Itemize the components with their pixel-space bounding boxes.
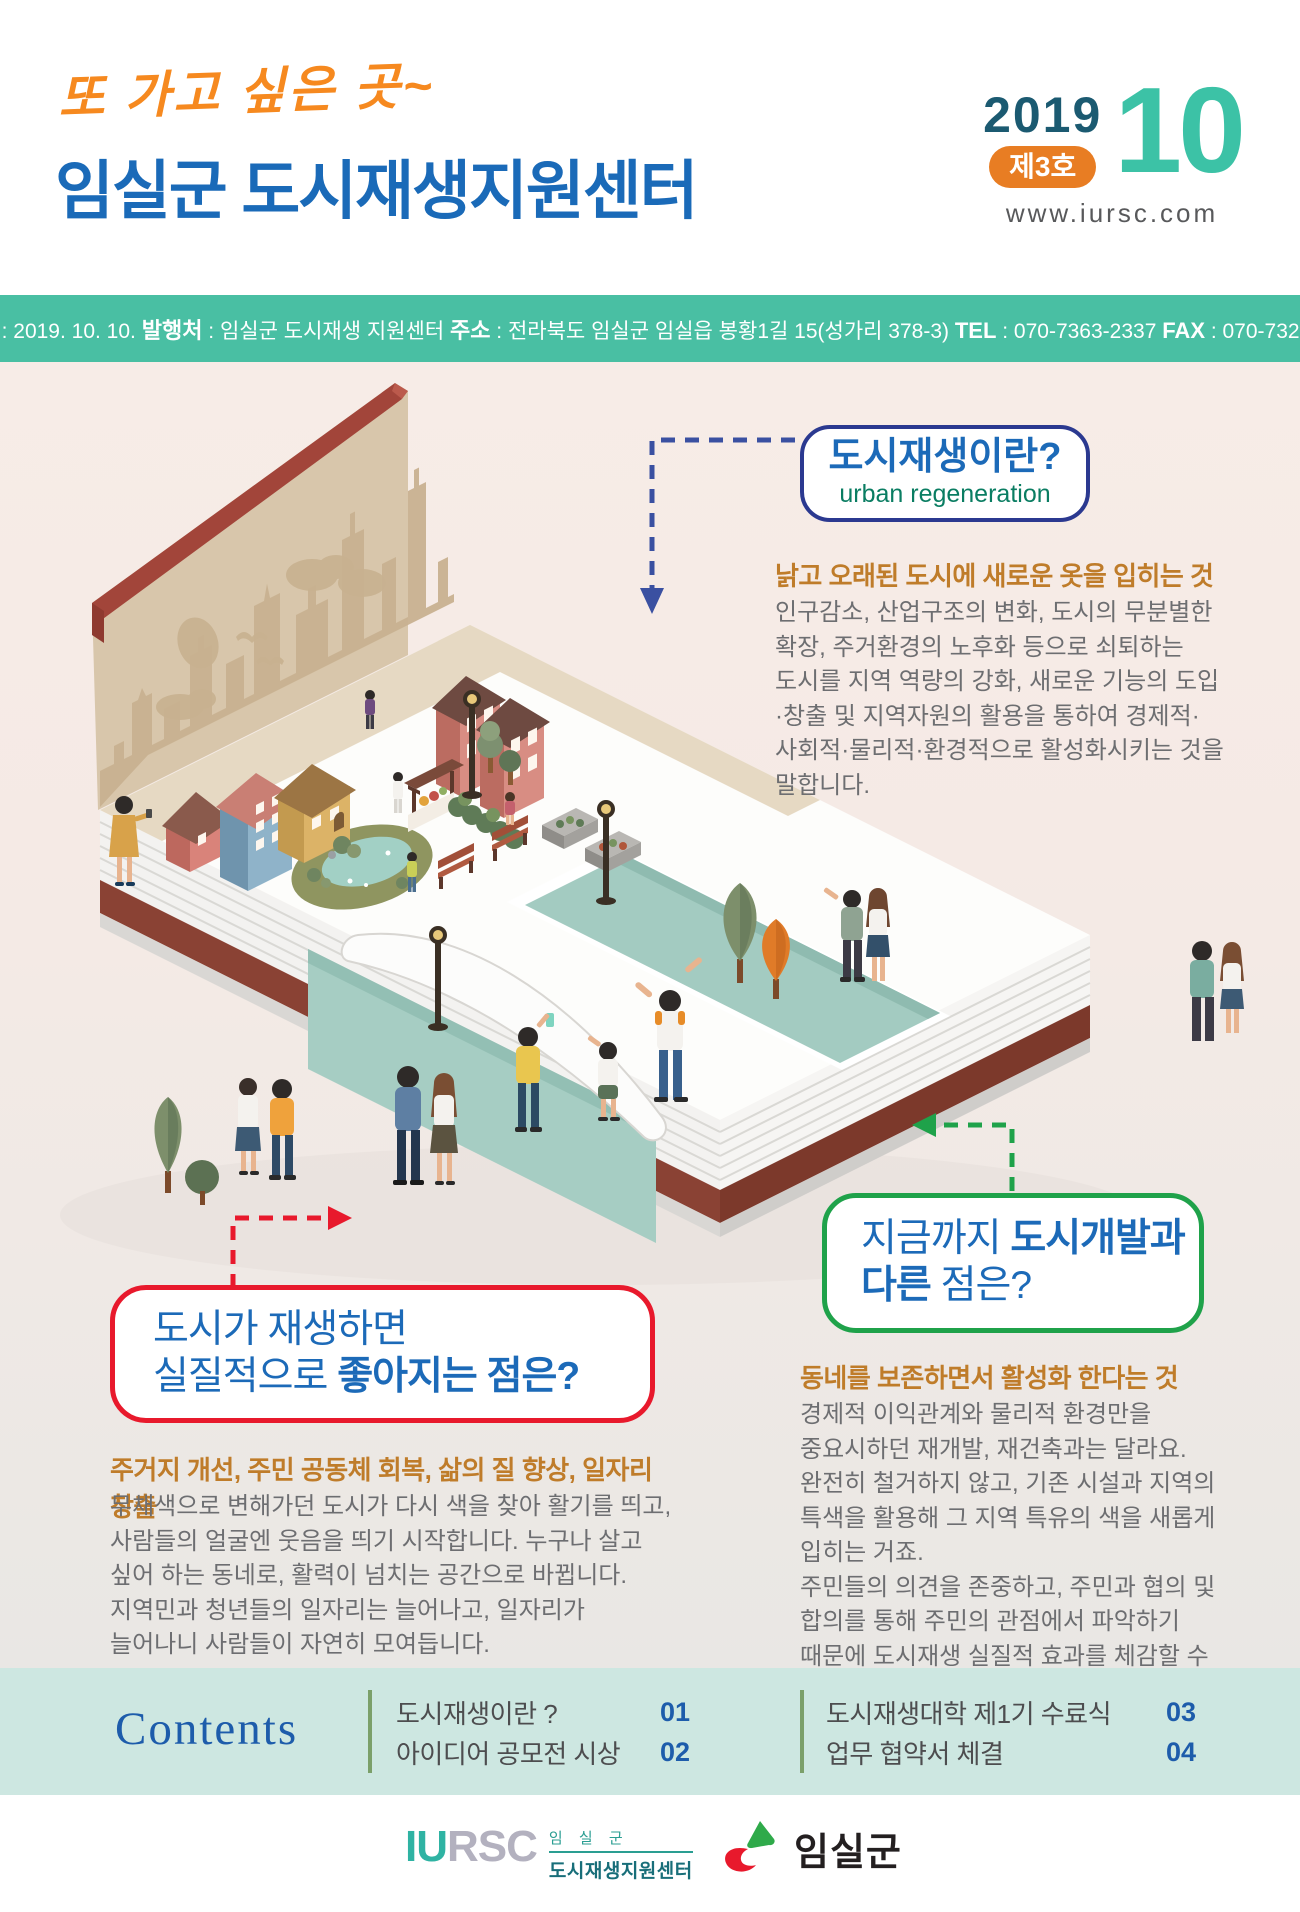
bubble-line-1: 지금까지 도시개발과 [861,1216,1199,1263]
main-body: 도시재생이란? urban regeneration 낡고 오래된 도시에 새로… [0,362,1300,1668]
contents-item-label: 도시재생대학 제1기 수료식 [826,1694,1111,1731]
contents-item[interactable]: 도시재생대학 제1기 수료식 03 [826,1692,1196,1732]
header: 또 가고 싶은 곳~ 임실군 도시재생지원센터 2019 제3호 10 www.… [0,0,1300,295]
bubble-line-2: 실질적으로 좋아지는 점은? [153,1354,650,1401]
bubble-line-1: 도시가 재생하면 [153,1307,650,1354]
page-title: 임실군 도시재생지원센터 [55,140,696,232]
contents-item-label: 업무 협약서 체결 [826,1734,1003,1771]
contents-band: Contents 도시재생이란 ? 01 아이디어 공모전 시상 02 도시재생… [0,1668,1300,1795]
issue-month: 10 [1114,80,1242,180]
contents-column-1: 도시재생이란 ? 01 아이디어 공모전 시상 02 [396,1692,706,1772]
tagline: 또 가고 싶은 곳~ [57,45,436,130]
imsil-name: 임실군 [794,1821,902,1876]
contents-item-label: 도시재생이란 ? [396,1694,557,1731]
bubble-subtitle: urban regeneration [839,480,1050,509]
difference-heading: 동네를 보존하면서 활성화 한다는 것 [800,1358,1240,1395]
imsil-emblem-icon [718,1817,780,1879]
what-is-body: 인구감소, 산업구조의 변화, 도시의 무분별한 확장, 주거환경의 노후화 등… [775,596,1227,803]
what-is-heading: 낡고 오래된 도시에 새로운 옷을 입히는 것 [775,556,1235,593]
bubble-what-is-urban-regeneration: 도시재생이란? urban regeneration [800,425,1090,522]
difference-paragraph-1: 경제적 이익관계와 물리적 환경만을 중요시하던 재개발, 재건축과는 달라요.… [800,1398,1248,1571]
issue-number-badge: 제3호 [989,146,1096,188]
contents-item-page: 01 [660,1697,690,1728]
iursc-sub-center: 도시재생지원센터 [549,1856,693,1883]
contents-item[interactable]: 도시재생이란 ? 01 [396,1692,706,1732]
benefits-body: 무채색으로 변해가던 도시가 다시 색을 찾아 활기를 띄고, 사람들의 얼굴엔… [110,1490,678,1663]
contents-item-label: 아이디어 공모전 시상 [396,1734,620,1771]
issue-year: 2019 [983,90,1102,140]
contents-item[interactable]: 업무 협약서 체결 04 [826,1732,1196,1772]
iursc-wordmark: IURSC [405,1825,537,1869]
contents-item-page: 03 [1166,1697,1196,1728]
bubble-benefits-question: 도시가 재생하면 실질적으로 좋아지는 점은? [110,1285,655,1423]
publication-info-bar: 발행일 : 2019. 10. 10. 발행처 : 임실군 도시재생 지원센터 … [0,295,1300,362]
contents-item-page: 04 [1166,1737,1196,1768]
imsil-county-logo: 임실군 [718,1817,902,1879]
website-url[interactable]: www.iursc.com [982,198,1242,229]
contents-item[interactable]: 아이디어 공모전 시상 02 [396,1732,706,1772]
bubble-title: 도시재생이란? [829,438,1062,478]
difference-body: 경제적 이익관계와 물리적 환경만을 중요시하던 재개발, 재건축과는 달라요.… [800,1398,1248,1709]
newsletter-page: 또 가고 싶은 곳~ 임실군 도시재생지원센터 2019 제3호 10 www.… [0,0,1300,1912]
contents-divider-1 [368,1690,372,1773]
contents-title: Contents [115,1702,298,1756]
contents-item-page: 02 [660,1737,690,1768]
bubble-difference-question: 지금까지 도시개발과 다른 점은? [822,1193,1204,1333]
publication-info-text: 발행일 : 2019. 10. 10. 발행처 : 임실군 도시재생 지원센터 … [0,313,1300,345]
bubble-line-2: 다른 점은? [861,1263,1199,1310]
contents-divider-2 [800,1690,804,1773]
footer: IURSC 임 실 군 도시재생지원센터 임실군 [0,1795,1300,1912]
person-couple-far-right [1190,941,1244,1041]
contents-column-2: 도시재생대학 제1기 수료식 03 업무 협약서 체결 04 [826,1692,1196,1772]
iursc-logo: IURSC 임 실 군 도시재생지원센터 [405,1825,693,1883]
iursc-sub-county: 임 실 군 [549,1827,693,1853]
issue-box: 2019 제3호 10 www.iursc.com [982,80,1242,229]
